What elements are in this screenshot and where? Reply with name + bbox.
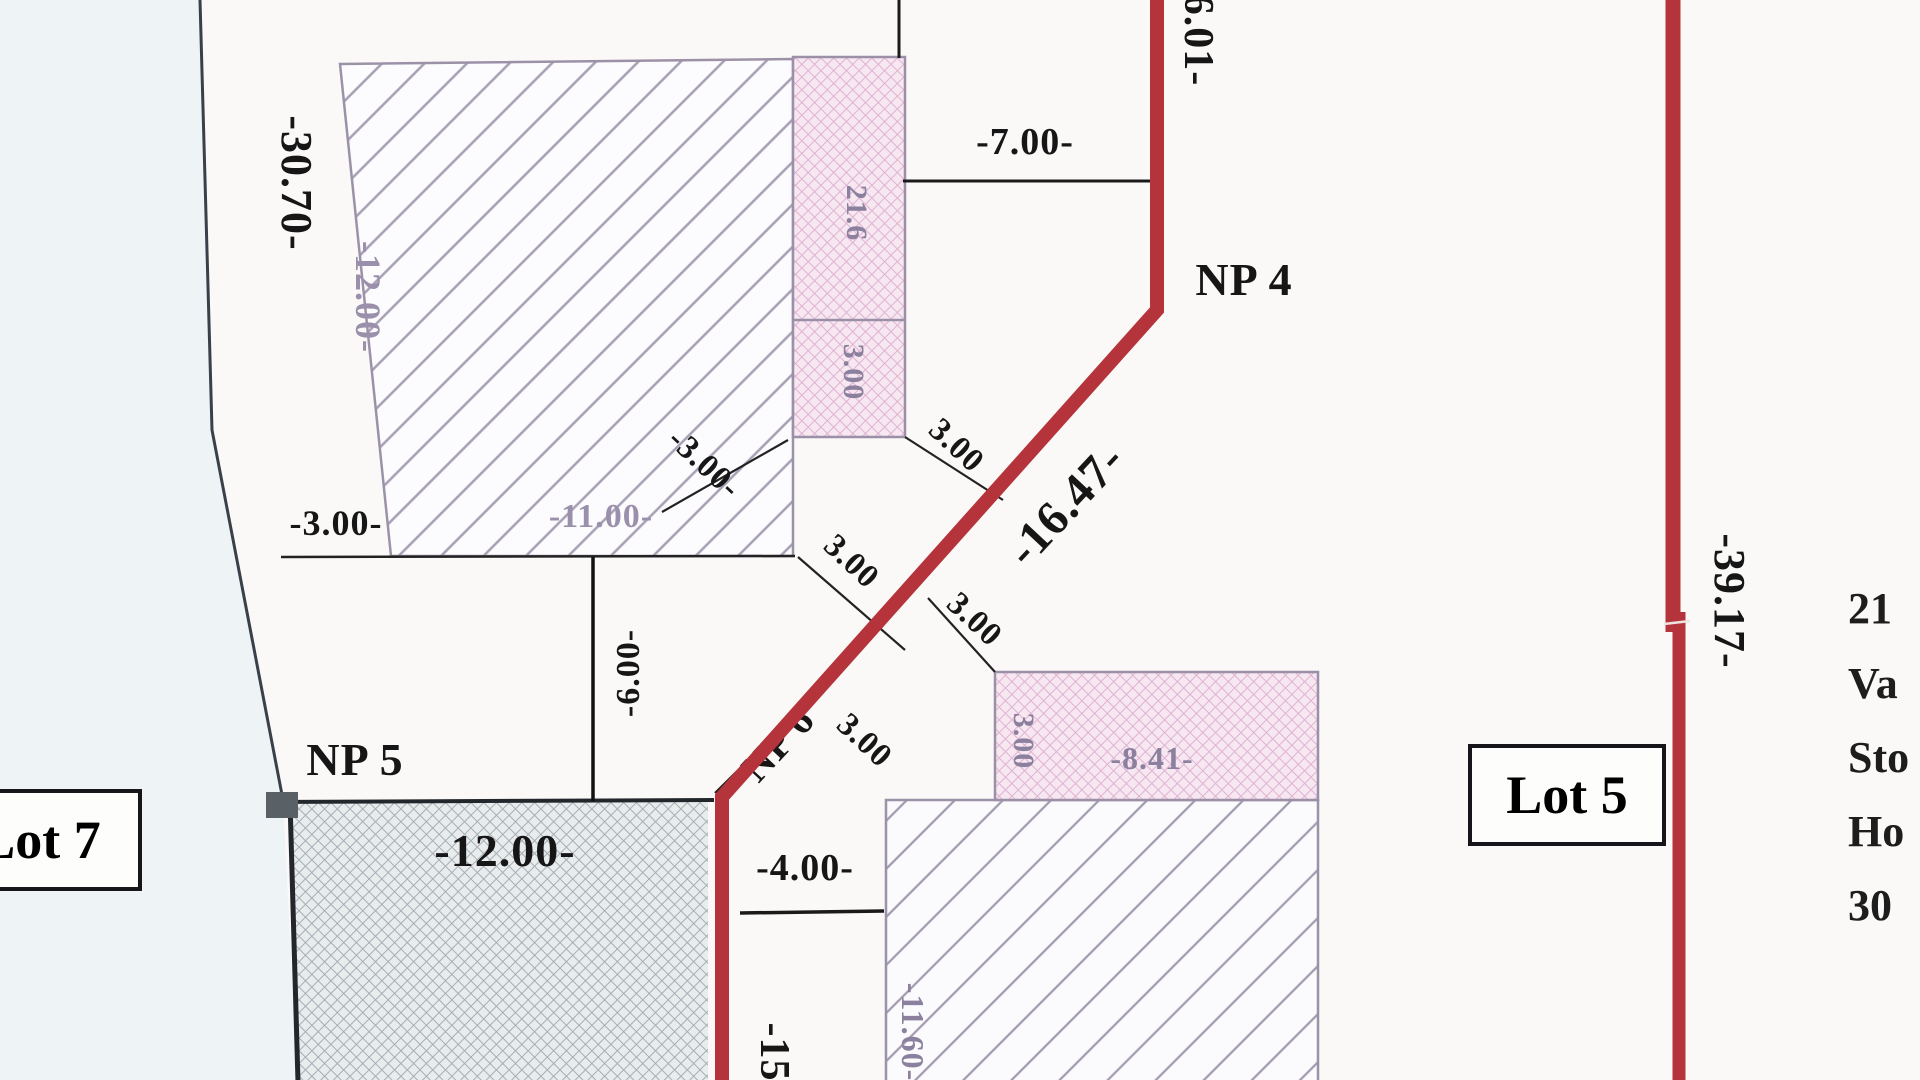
strip-label-3-00: 3.00: [838, 344, 868, 401]
dim-top-right-partial: 6.01-: [1177, 0, 1219, 86]
dim-left-gap-3-00: -3.00-: [290, 505, 383, 541]
lot7-label: Lot 7: [0, 809, 101, 871]
lot5-label-box: Lot 5: [1468, 744, 1666, 846]
dim-lower-gap-4-00: -4.00-: [756, 849, 854, 887]
dim-gray-building-12-00: -12.00-: [434, 828, 575, 874]
dim-red-bottom-15: -15: [753, 1023, 795, 1080]
strip-label-21-6: 21.6: [841, 185, 871, 242]
notes-line-2: Va: [1848, 658, 1898, 709]
np5-corner-marker: [266, 792, 298, 818]
notes-line-4: Ho: [1848, 806, 1904, 857]
dim-building-12-00: -12.00-: [350, 241, 386, 353]
dim-top-offset: -7.00-: [976, 123, 1074, 161]
gray-building-top-edge: [268, 800, 714, 802]
notes-line-3: Sto: [1848, 732, 1909, 783]
notes-line-1: 21: [1848, 583, 1892, 634]
dim-room-6-00: -6.00-: [612, 629, 646, 717]
dim-building-11-00: -11.00-: [549, 500, 653, 534]
lot5-label: Lot 5: [1506, 764, 1628, 826]
dim-strip-8-41: -8.41-: [1110, 742, 1193, 774]
building-hatched-lot5: [886, 800, 1318, 1080]
lot7-label-box: Lot 7: [0, 789, 142, 891]
notes-line-5: 30: [1848, 880, 1892, 931]
dim-lot5-depth-11-60: -11.60-: [897, 983, 929, 1080]
point-label-np4: NP 4: [1195, 257, 1292, 303]
dim-line-4-00: [740, 911, 884, 913]
plat-survey-drawing: NP 6 -30.70- -7.00- 6.01- NP 4 -16.47- 3…: [0, 0, 1920, 1080]
point-label-np5: NP 5: [306, 737, 403, 783]
building-pink-strip-lot5: [995, 672, 1318, 800]
lot5-strip-label-3-00: 3.00: [1008, 713, 1038, 770]
building-base-line: [281, 556, 795, 557]
dim-left-boundary: -30.70-: [274, 115, 318, 250]
dim-right-boundary-39-17: -39.17-: [1707, 533, 1751, 668]
